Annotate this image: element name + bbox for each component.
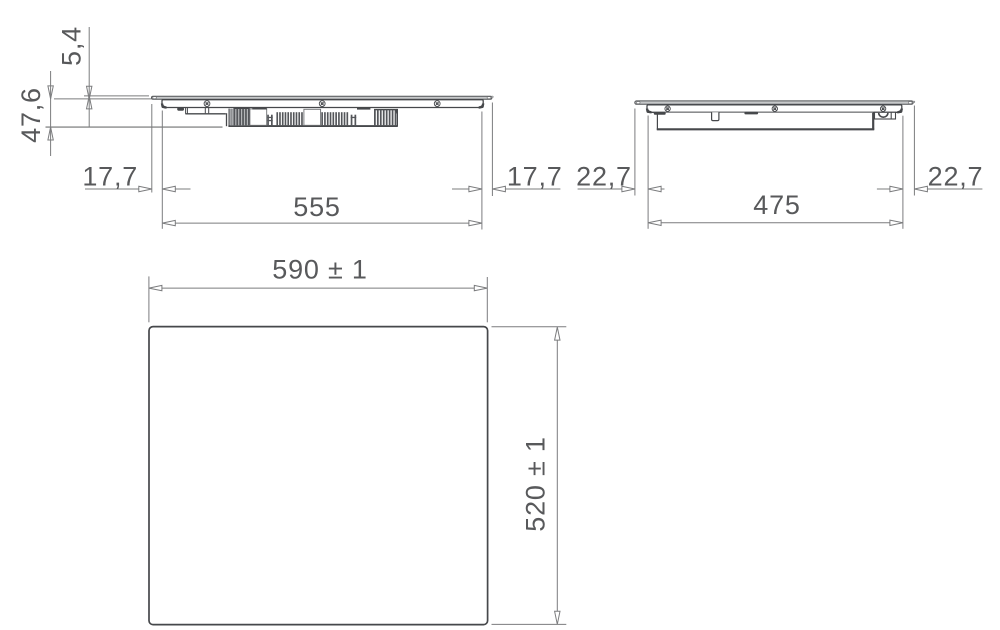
svg-text:47,6: 47,6: [16, 87, 46, 143]
svg-text:590 ± 1: 590 ± 1: [272, 255, 368, 285]
svg-text:475: 475: [753, 190, 800, 220]
svg-text:5,4: 5,4: [57, 26, 87, 66]
svg-text:520 ± 1: 520 ± 1: [521, 436, 551, 532]
svg-text:555: 555: [293, 192, 340, 222]
svg-text:17,7: 17,7: [507, 161, 563, 191]
svg-text:22,7: 22,7: [928, 161, 984, 191]
svg-text:22,7: 22,7: [576, 161, 632, 191]
svg-text:17,7: 17,7: [82, 161, 138, 191]
